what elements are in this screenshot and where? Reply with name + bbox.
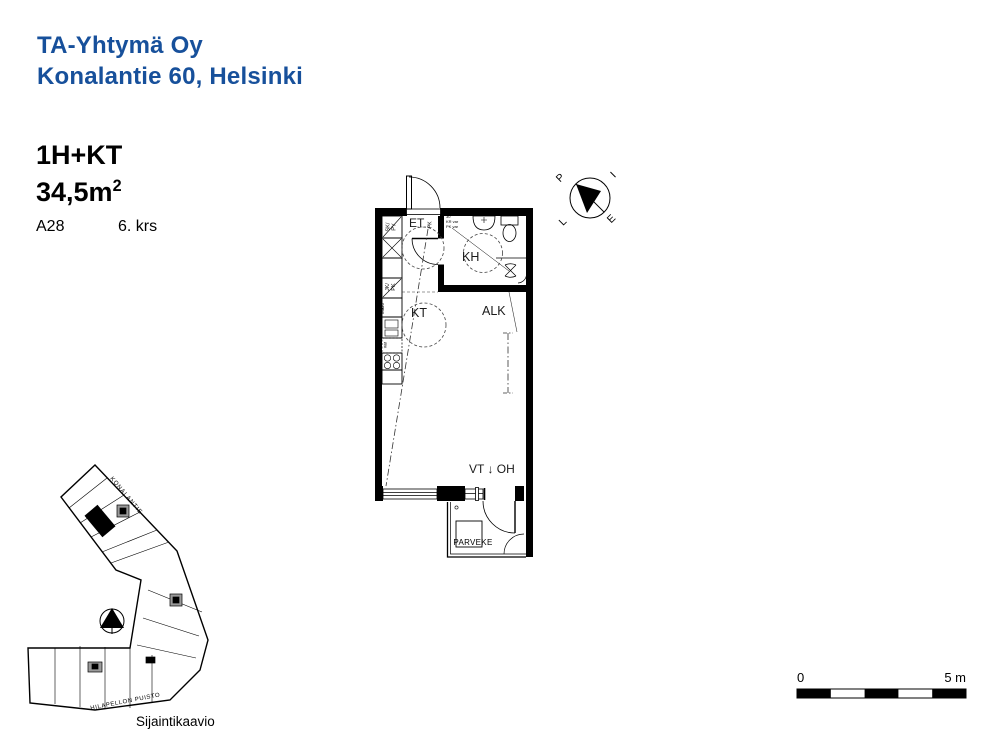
ceiling-height-lines: [386, 227, 517, 486]
room-label-balcony: PARVEKE: [452, 538, 494, 547]
unit-area: 34,5m2: [36, 171, 122, 207]
bathroom-door: [412, 239, 438, 265]
scale-bar: [797, 689, 966, 698]
label-dishwasher-reservation: APK var: [378, 337, 390, 353]
toilet: [501, 216, 518, 242]
compass-rose: [570, 178, 610, 218]
project-address: Konalantie 60, Helsinki: [37, 61, 303, 92]
apartment-location-marker: [85, 505, 116, 537]
scale-five: 5 m: [944, 670, 966, 685]
label-vt-oh: VT ↓ OH: [469, 462, 515, 476]
room-label-kitchenette: KT: [411, 306, 427, 320]
label-cleaning-closet: SK/ PY: [380, 216, 402, 238]
floorplan-page: TA-Yhtymä Oy Konalantie 60, Helsinki 1H+…: [0, 0, 1000, 750]
area-superscript: 2: [113, 177, 122, 195]
label-fridge-freezer: JK/ PK: [380, 277, 402, 298]
label-laundry-reservation: 30 KR var PK var: [446, 215, 461, 229]
unit-floor: 6. krs: [118, 218, 157, 236]
apartment-walls: [375, 208, 533, 557]
room-label-bathroom: KH: [462, 250, 479, 264]
balcony-railing: [448, 502, 527, 557]
site-plan: [28, 465, 208, 710]
company-name: TA-Yhtymä Oy: [37, 30, 303, 61]
washbasin: [473, 216, 495, 230]
drawing-canvas: [0, 0, 1000, 750]
header-block: TA-Yhtymä Oy Konalantie 60, Helsinki: [37, 30, 303, 92]
label-microwave: Mikro: [378, 299, 388, 317]
balcony-door: [483, 501, 515, 533]
site-north-arrow: [100, 608, 124, 634]
unit-code: A28: [36, 218, 64, 236]
site-caption: Sijaintikaavio: [136, 714, 215, 729]
room-label-alcove: ALK: [482, 304, 506, 318]
entrance-door: [407, 176, 441, 209]
unit-type: 1H+KT: [36, 140, 122, 170]
room-label-entrance: ET: [409, 216, 424, 230]
scale-zero: 0: [797, 670, 804, 685]
label-entry-cabinet: PK: [426, 219, 436, 231]
